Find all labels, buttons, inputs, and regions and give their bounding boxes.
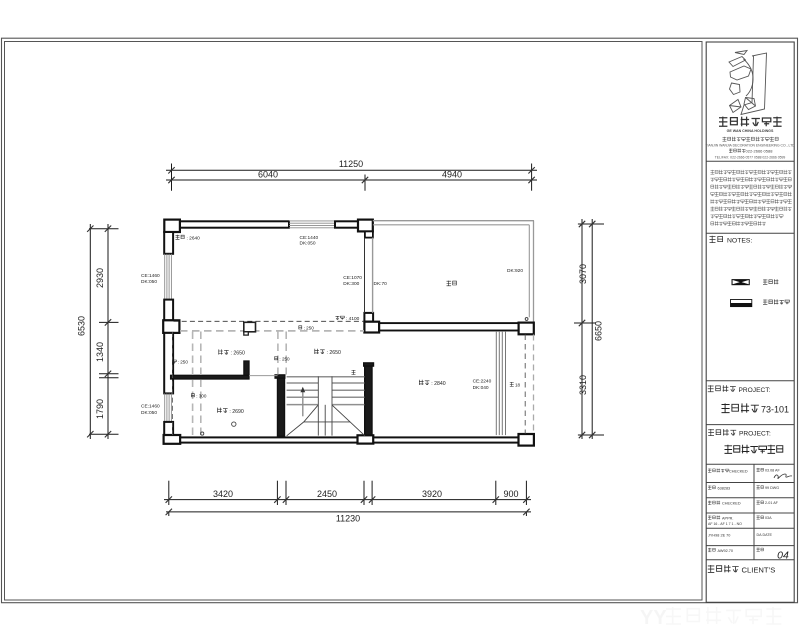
- svg-text:: 250: : 250: [304, 326, 315, 331]
- svg-text:: 2640: : 2640: [187, 235, 201, 241]
- svg-text:DK:70: DK:70: [374, 281, 388, 287]
- svg-text:11230: 11230: [336, 514, 360, 524]
- svg-text:CE:1460: CE:1460: [141, 404, 160, 410]
- svg-text:2450: 2450: [317, 489, 337, 499]
- svg-text:2-01 AF: 2-01 AF: [765, 501, 779, 505]
- svg-text:APPR.: APPR.: [722, 516, 733, 520]
- svg-text:03A: 03A: [765, 516, 772, 520]
- svg-text:DK:040: DK:040: [473, 385, 489, 391]
- svg-text:6040: 6040: [258, 170, 278, 180]
- svg-text:CLIENT’S: CLIENT’S: [742, 565, 776, 574]
- svg-text:DK:050: DK:050: [141, 279, 157, 285]
- svg-text:3310: 3310: [578, 375, 588, 395]
- svg-text:: 250: : 250: [279, 356, 290, 361]
- svg-text:1340: 1340: [95, 342, 105, 362]
- svg-text:: 4100: : 4100: [346, 316, 360, 322]
- svg-text:6650: 6650: [594, 321, 604, 341]
- svg-text:: 250: : 250: [178, 360, 189, 365]
- svg-text:DA DATE: DA DATE: [757, 533, 773, 537]
- svg-text:4940: 4940: [442, 170, 462, 180]
- svg-text:PROJECT:: PROJECT:: [739, 431, 771, 438]
- svg-text:022-2666 0588: 022-2666 0588: [746, 149, 774, 154]
- svg-text:CE:2240: CE:2240: [473, 378, 492, 384]
- svg-text:: 300: : 300: [196, 394, 207, 399]
- svg-text:1790: 1790: [95, 399, 105, 419]
- svg-text:6530: 6530: [77, 316, 87, 336]
- svg-text:: 2650: : 2650: [231, 351, 246, 357]
- svg-text:NOTES:: NOTES:: [727, 238, 752, 245]
- svg-text:03.08 AF: 03.08 AF: [765, 469, 781, 473]
- svg-text:CHECKED: CHECKED: [729, 469, 748, 473]
- svg-text:18: 18: [515, 382, 521, 387]
- svg-text:2930: 2930: [95, 268, 105, 288]
- svg-text:: 2650: : 2650: [327, 350, 342, 356]
- svg-text:3420: 3420: [213, 489, 233, 499]
- svg-text:900: 900: [503, 489, 518, 499]
- svg-text:CE:1070: CE:1070: [343, 275, 362, 281]
- svg-text:DK:050: DK:050: [141, 410, 157, 416]
- svg-text:YY: YY: [640, 607, 667, 629]
- svg-text:99 DWG: 99 DWG: [765, 486, 779, 490]
- svg-text:: 2840: : 2840: [431, 381, 446, 387]
- svg-text:3920: 3920: [422, 489, 442, 499]
- svg-text:3070: 3070: [578, 264, 588, 284]
- svg-text:04: 04: [777, 550, 789, 562]
- svg-text:DK:300: DK:300: [343, 281, 359, 287]
- svg-text:11250: 11250: [339, 159, 363, 169]
- svg-text:AF 16 - AF 1 7 1 - NO: AF 16 - AF 1 7 1 - NO: [708, 522, 742, 526]
- svg-text:: 2690: : 2690: [229, 409, 244, 415]
- svg-text:DK:920: DK:920: [507, 268, 523, 274]
- svg-text:JYH98 2E 70: JYH98 2E 70: [708, 534, 730, 538]
- svg-text:GE WAN CHINA HOLDINGS: GE WAN CHINA HOLDINGS: [727, 129, 774, 133]
- svg-text:PROJECT:: PROJECT:: [739, 387, 771, 394]
- svg-text:638283: 638283: [718, 486, 731, 490]
- svg-text:AW92.70: AW92.70: [718, 549, 733, 553]
- svg-text:TEL/FAX: 022-2666 0577 0588: TEL/FAX: 022-2666 0577 0588 022-2666 059…: [715, 155, 786, 159]
- svg-text:CHECKED: CHECKED: [722, 502, 741, 506]
- svg-text:73-101: 73-101: [761, 405, 789, 415]
- svg-text:DK:050: DK:050: [300, 241, 316, 247]
- svg-text:CE:1440: CE:1440: [300, 235, 319, 241]
- svg-text:CE:1460: CE:1460: [141, 273, 160, 279]
- svg-text:TIANJIN WANJIA DECORATION ENGI: TIANJIN WANJIA DECORATION ENGINEERING CO…: [705, 144, 795, 148]
